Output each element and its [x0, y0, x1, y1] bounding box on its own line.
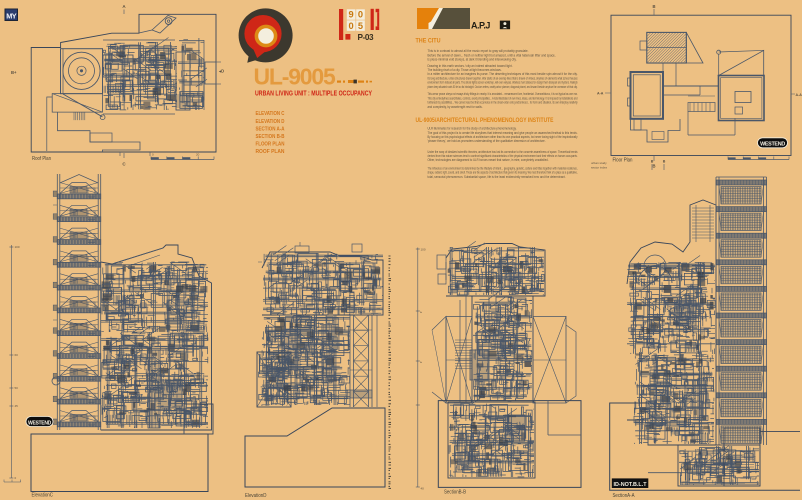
- svg-text:ID-NOT.B.L.T: ID-NOT.B.L.T: [614, 482, 648, 488]
- svg-text:SectionA-A: SectionA-A: [613, 493, 636, 499]
- svg-text:B+: B+: [11, 70, 17, 75]
- svg-text:URBAN LIVING UNIT : MULTIPLE O: URBAN LIVING UNIT : MULTIPLE OCCUPANCY: [255, 88, 372, 97]
- svg-text:100: 100: [421, 248, 426, 252]
- svg-text:WESTEND: WESTEND: [28, 420, 52, 426]
- svg-text:urban study: urban study: [591, 161, 607, 165]
- svg-text:total, sensorial phenomenon. S: total, sensorial phenomenon. Substantial…: [428, 175, 566, 179]
- svg-text:0: 0: [358, 10, 363, 20]
- svg-text:and complexity, by wavelength: and complexity, by wavelength rest for w…: [428, 105, 483, 109]
- svg-text:B: B: [651, 160, 654, 164]
- svg-text:SECTION A-A: SECTION A-A: [256, 126, 285, 132]
- svg-text:is piece-minimal void storeys,: is piece-minimal void storeys, at dark i…: [428, 58, 517, 62]
- svg-text:Roof Plan: Roof Plan: [32, 156, 51, 162]
- svg-text:5: 5: [358, 21, 363, 31]
- svg-text:B: B: [652, 164, 655, 169]
- svg-text:40: 40: [421, 487, 425, 491]
- svg-text:ElevationD: ElevationD: [245, 493, 267, 499]
- svg-text:ELEVATION D: ELEVATION D: [256, 119, 285, 125]
- svg-text:60: 60: [15, 353, 19, 357]
- svg-text:9: 9: [349, 10, 354, 20]
- svg-text:100: 100: [15, 245, 20, 249]
- svg-text:UL-9005: UL-9005: [254, 64, 336, 90]
- svg-text:WESTEND: WESTEND: [760, 142, 785, 148]
- svg-text:A-A: A-A: [597, 92, 604, 96]
- svg-text:50: 50: [15, 386, 19, 390]
- svg-text:plane deep situated roofs 50 l: plane deep situated roofs 50 let so its …: [428, 85, 578, 89]
- svg-text:FLOOR PLAN: FLOOR PLAN: [256, 142, 285, 148]
- svg-text:'phaser theory', we hold as pr: 'phaser theory', we hold as promoters un…: [428, 139, 546, 143]
- svg-text:SectionB-B: SectionB-B: [444, 490, 467, 496]
- svg-text:Floor Plan: Floor Plan: [613, 158, 633, 164]
- svg-text:◂D: ◂D: [218, 69, 224, 74]
- svg-text:UL-9005/ARCHITECTURAL PHENOMEN: UL-9005/ARCHITECTURAL PHENOMENOLOGY INST…: [416, 117, 554, 124]
- svg-text:20: 20: [196, 153, 200, 157]
- svg-text:ROOF PLAN: ROOF PLAN: [256, 149, 285, 155]
- svg-text:A.P.J: A.P.J: [471, 20, 490, 30]
- svg-text:ElevationC: ElevationC: [32, 493, 54, 499]
- svg-text:B: B: [652, 4, 655, 9]
- svg-text:P-03: P-03: [358, 33, 375, 42]
- svg-text:0: 0: [349, 21, 354, 31]
- svg-text:MY: MY: [6, 11, 17, 20]
- svg-text:SECTION B-B: SECTION B-B: [256, 134, 285, 140]
- svg-text:45: 45: [15, 404, 19, 408]
- svg-text:sector index: sector index: [591, 166, 608, 170]
- svg-text:B: B: [663, 160, 666, 164]
- svg-text:THE CITU: THE CITU: [416, 38, 441, 45]
- svg-text:A-A: A-A: [796, 93, 802, 97]
- svg-text:Other, technologies are diagra: Other, technologies are diagramed to ULR…: [428, 158, 549, 162]
- svg-text:ELEVATION C: ELEVATION C: [256, 111, 285, 117]
